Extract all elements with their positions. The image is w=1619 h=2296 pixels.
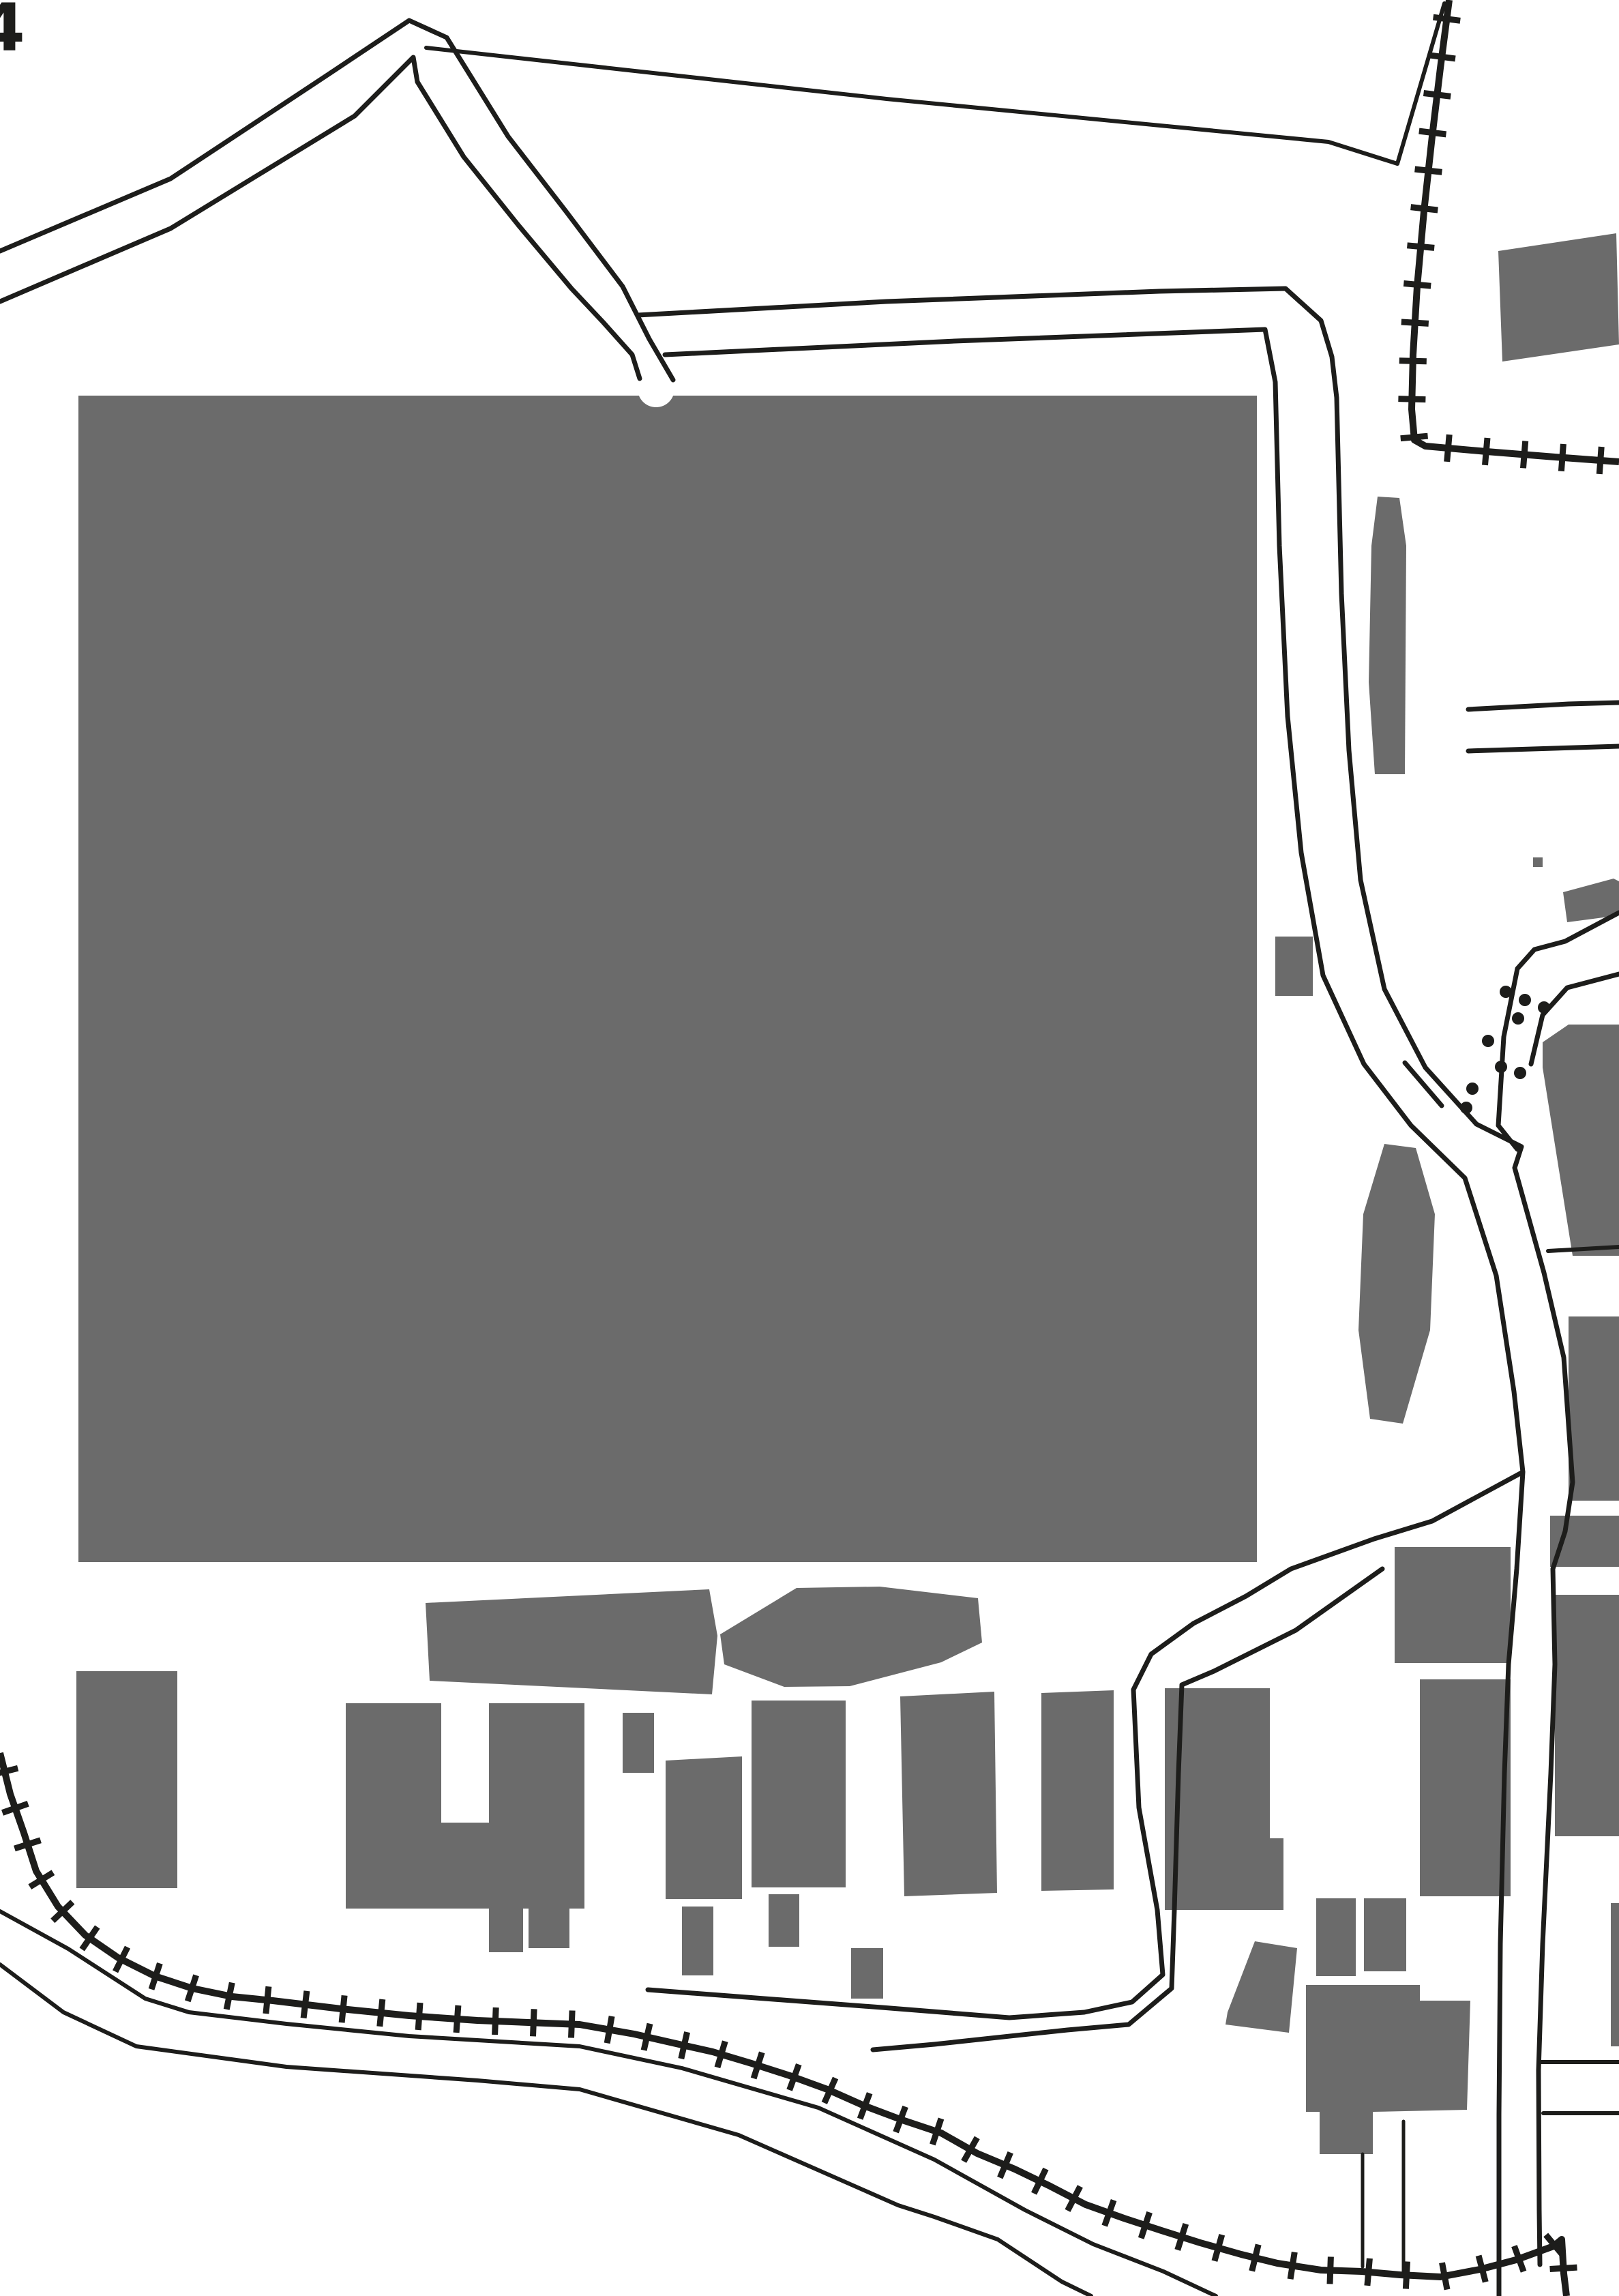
railway-s-tick bbox=[456, 2005, 458, 2033]
railway-s-tick bbox=[1330, 2257, 1331, 2284]
map-canvas: 4 bbox=[0, 0, 1619, 2296]
railway-s-tick bbox=[1290, 2252, 1294, 2280]
railway-s-tick bbox=[342, 1995, 344, 2022]
railway-ne-tick bbox=[1561, 444, 1563, 471]
bldg-s-1 bbox=[76, 1671, 177, 1888]
railway-ne-tick bbox=[1419, 131, 1446, 134]
bldg-e-tall-north bbox=[1369, 497, 1406, 774]
bldg-e-dot bbox=[1533, 857, 1543, 867]
tree-dot-5 bbox=[1495, 1061, 1507, 1073]
bldg-s-16 bbox=[1395, 1547, 1511, 1663]
bldg-s-2 bbox=[426, 1589, 717, 1694]
railway-s-tick bbox=[495, 2007, 496, 2035]
bldg-s-8 bbox=[851, 1948, 883, 1999]
bldg-s-4-leg-a bbox=[489, 1909, 523, 1952]
large-parcel bbox=[78, 396, 1257, 1562]
tree-dot-2 bbox=[1538, 1001, 1550, 1014]
railway-s-tick bbox=[1550, 2267, 1577, 2269]
tree-dot-3 bbox=[1512, 1012, 1524, 1025]
tree-dot-4 bbox=[1482, 1035, 1494, 1047]
bldg-ne bbox=[1498, 233, 1619, 362]
railway-ne-tick bbox=[1524, 441, 1526, 469]
bldg-e-4 bbox=[1555, 1595, 1619, 1836]
railway-ne-tick bbox=[1485, 438, 1488, 465]
railway-ne-tick bbox=[1401, 322, 1429, 323]
railway-s-tick bbox=[418, 2003, 420, 2030]
railway-ne-tick bbox=[1403, 284, 1431, 286]
railway-s-tick bbox=[1406, 2262, 1407, 2289]
bldg-s-7 bbox=[752, 1701, 846, 1887]
tree-dot-6 bbox=[1514, 1067, 1526, 1079]
railway-ne-tick bbox=[1424, 93, 1451, 97]
railway-ne-tick bbox=[1599, 447, 1601, 474]
railway-s-tick bbox=[571, 2011, 573, 2038]
bldg-s-7-leg bbox=[769, 1894, 799, 1947]
bldg-s-6 bbox=[666, 1756, 742, 1899]
railway-s-tick bbox=[303, 1991, 307, 2018]
bldg-e-2 bbox=[1569, 1316, 1619, 1501]
bldg-s-13 bbox=[1316, 1898, 1356, 1976]
railway-ne-tick bbox=[1407, 246, 1434, 248]
railway-ne-tick bbox=[1434, 17, 1461, 20]
railway-ne-tick bbox=[1399, 361, 1427, 362]
railway-ne-tick bbox=[1447, 435, 1450, 462]
bldg-s-10 bbox=[1041, 1690, 1114, 1891]
bldg-e-5 bbox=[1611, 1903, 1619, 2046]
railway-ne-tick bbox=[1411, 207, 1438, 210]
tree-dot-8 bbox=[1460, 1102, 1472, 1114]
bldg-s-9 bbox=[900, 1692, 997, 1896]
railway-ne-tick bbox=[1401, 436, 1428, 439]
map-viewport: 4 bbox=[0, 0, 1619, 2296]
bldg-s-6-leg bbox=[682, 1907, 713, 1975]
railway-ne-tick bbox=[1428, 55, 1455, 59]
bldg-s-4-leg-b bbox=[529, 1909, 569, 1948]
bldg-s-17 bbox=[1420, 1679, 1511, 1896]
railway-ne-tick bbox=[1398, 399, 1425, 400]
tree-dot-7 bbox=[1466, 1083, 1479, 1095]
railway-s-tick bbox=[266, 1986, 269, 2014]
map-label-4: 4 bbox=[0, 0, 25, 66]
railway-s-tick bbox=[533, 2009, 535, 2036]
railway-s-tick bbox=[1367, 2258, 1370, 2286]
railway-ne-tick bbox=[1415, 169, 1442, 172]
bldg-s-14 bbox=[1364, 1898, 1406, 1971]
railway-s-tick bbox=[380, 1999, 383, 2027]
tree-dot-0 bbox=[1500, 986, 1512, 998]
bldg-mid-small bbox=[1275, 937, 1313, 996]
bldg-s-5 bbox=[623, 1713, 654, 1773]
tree-dot-1 bbox=[1519, 994, 1531, 1006]
